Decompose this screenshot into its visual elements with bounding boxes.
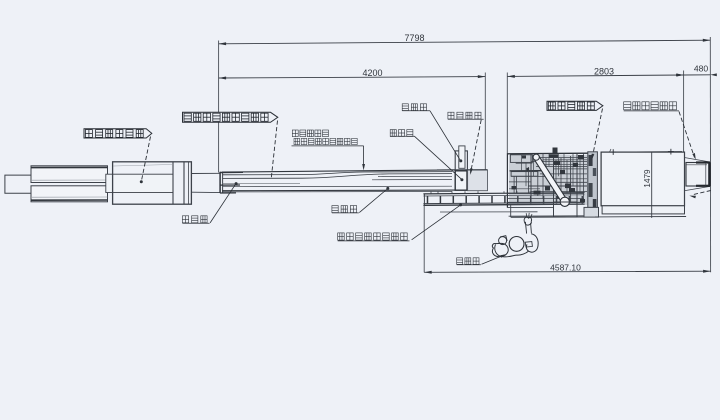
svg-text:4200: 4200	[362, 68, 382, 78]
svg-text:7798: 7798	[404, 33, 424, 43]
svg-text:480: 480	[694, 64, 709, 74]
svg-text:4587.10: 4587.10	[550, 262, 581, 272]
svg-text:1479: 1479	[643, 169, 652, 188]
svg-text:2803: 2803	[594, 66, 614, 76]
